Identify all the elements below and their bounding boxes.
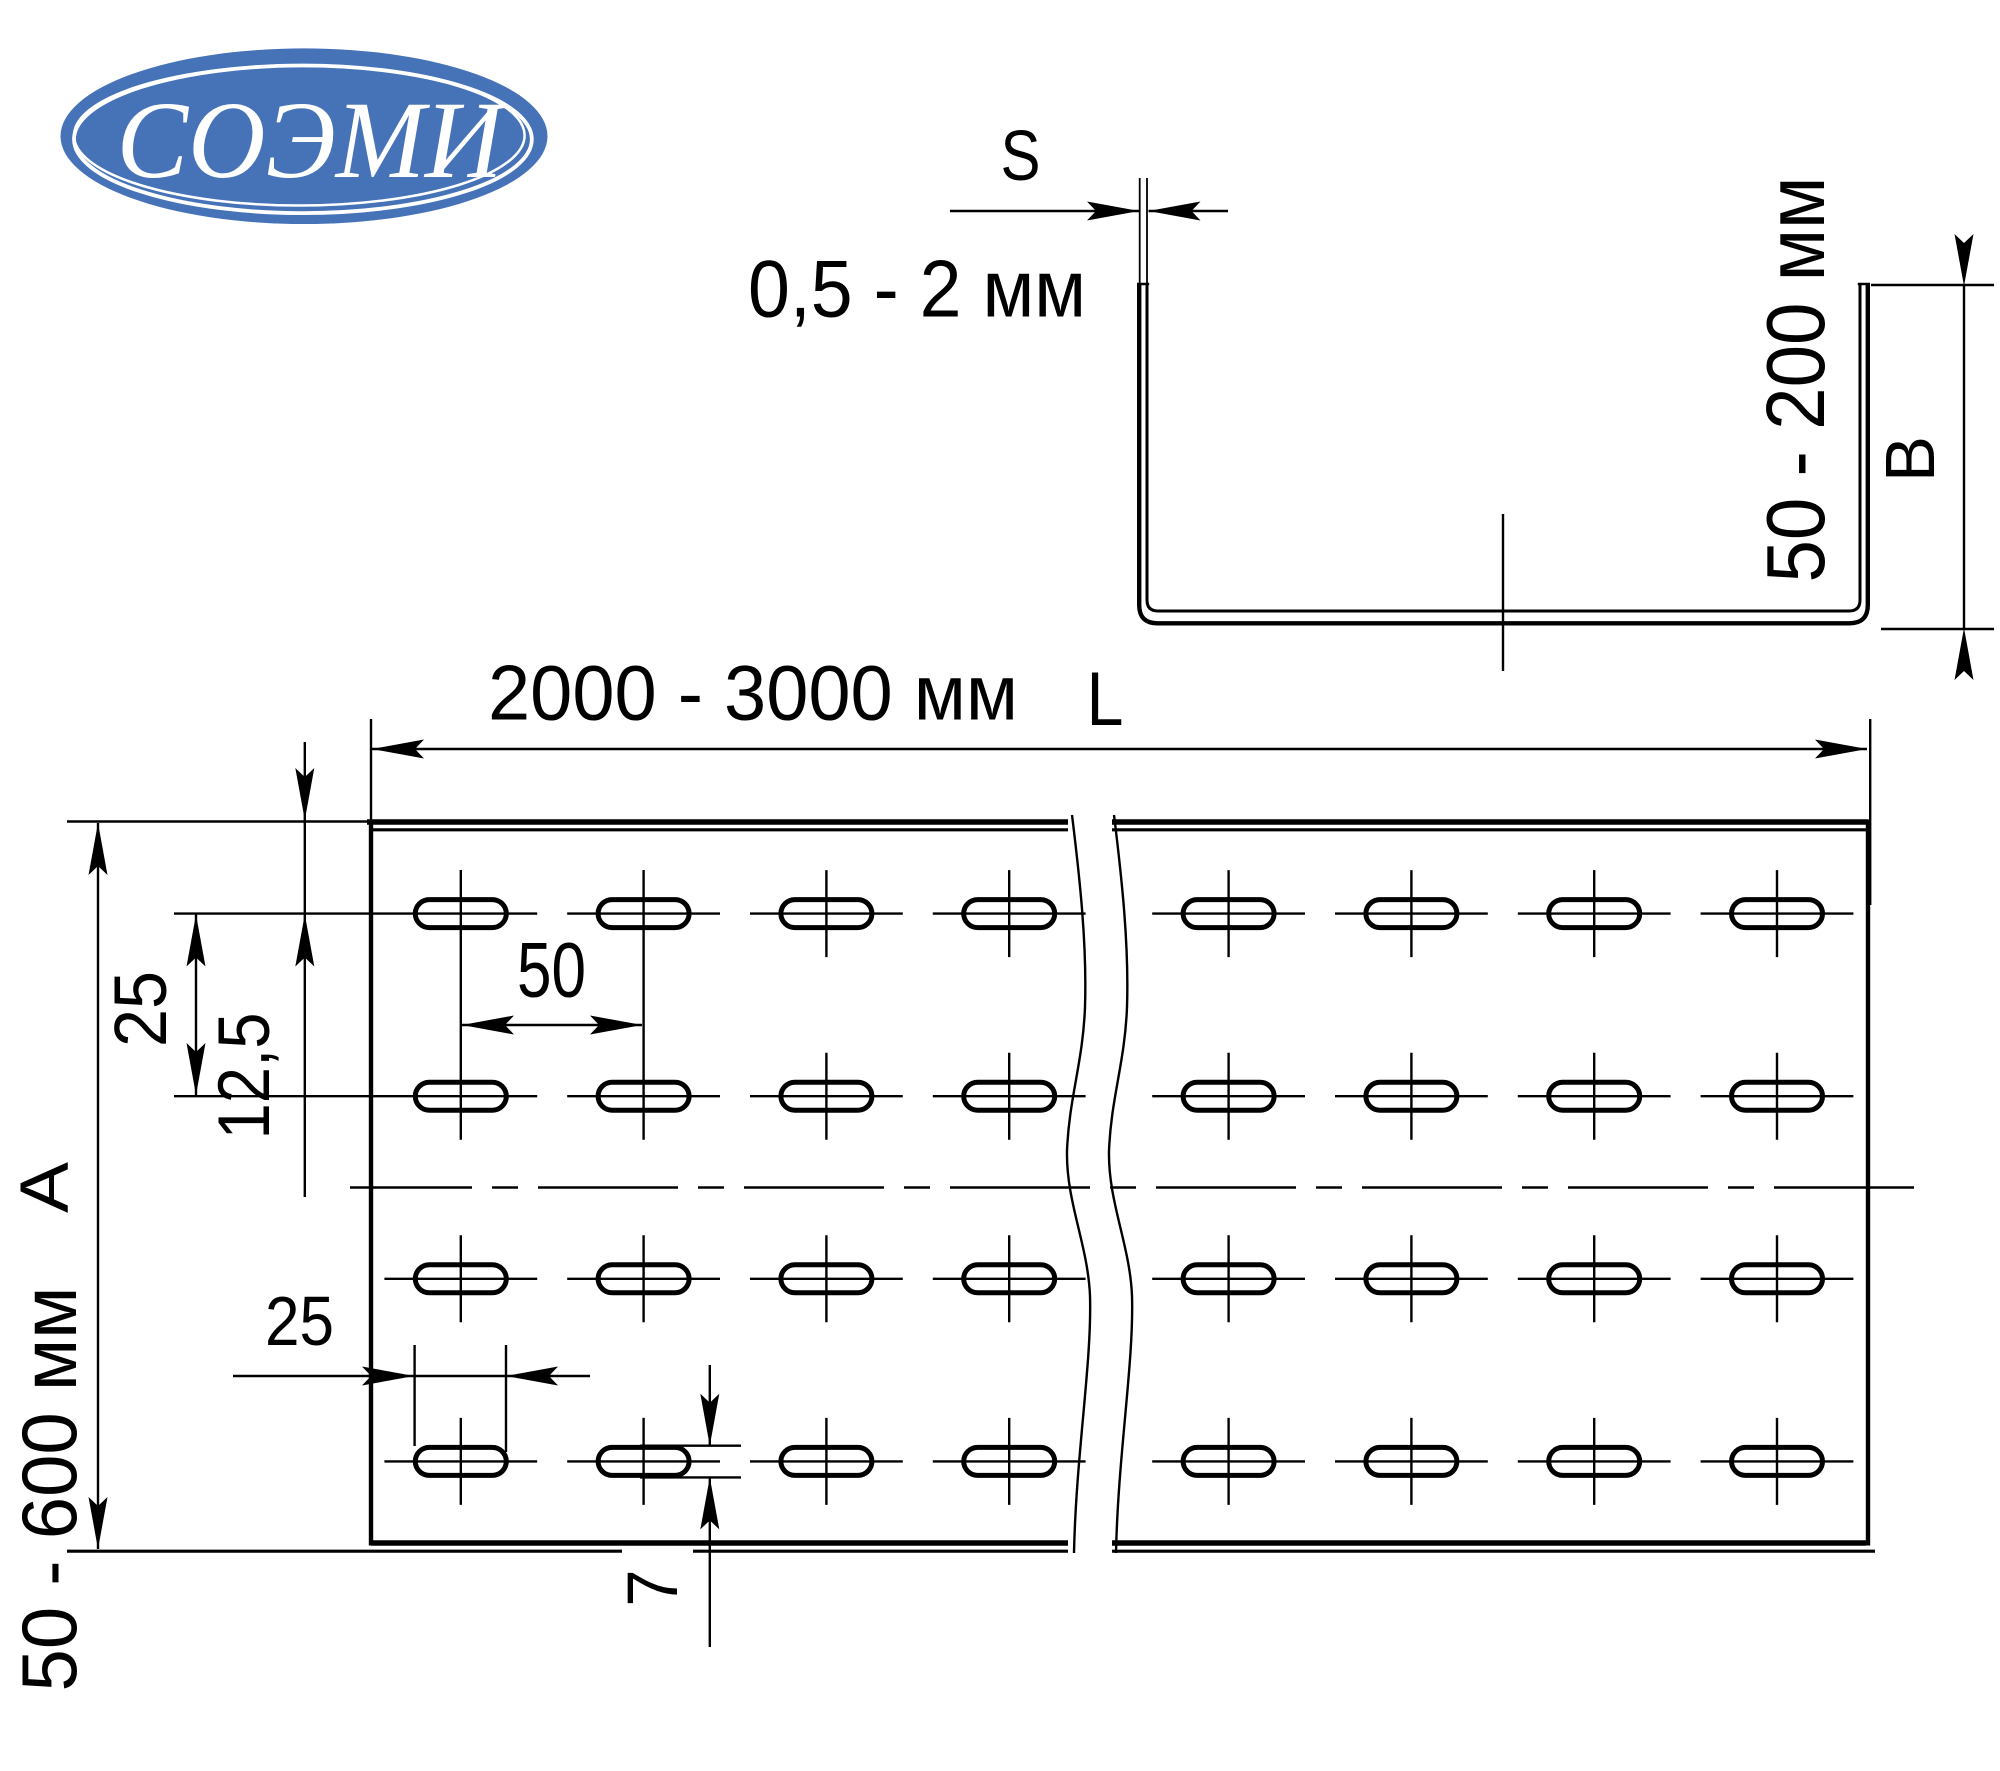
svg-text:0,5 - 2 мм: 0,5 - 2 мм [748, 245, 1086, 335]
svg-text:7: 7 [614, 1570, 693, 1607]
svg-text:50 - 600 мм: 50 - 600 мм [5, 1287, 93, 1692]
svg-text:25: 25 [99, 971, 182, 1047]
svg-text:L: L [1087, 657, 1124, 742]
svg-text:B: B [1871, 436, 1949, 482]
svg-text:S: S [1001, 117, 1041, 196]
svg-text:12,5: 12,5 [204, 1013, 285, 1140]
svg-text:50: 50 [517, 926, 586, 1014]
svg-text:50 - 200 мм: 50 - 200 мм [1749, 177, 1842, 583]
svg-text:25: 25 [265, 1282, 334, 1360]
svg-text:А: А [6, 1162, 83, 1213]
svg-text:2000 - 3000 мм: 2000 - 3000 мм [488, 649, 1018, 737]
svg-text:СОЭМИ: СОЭМИ [117, 79, 508, 201]
